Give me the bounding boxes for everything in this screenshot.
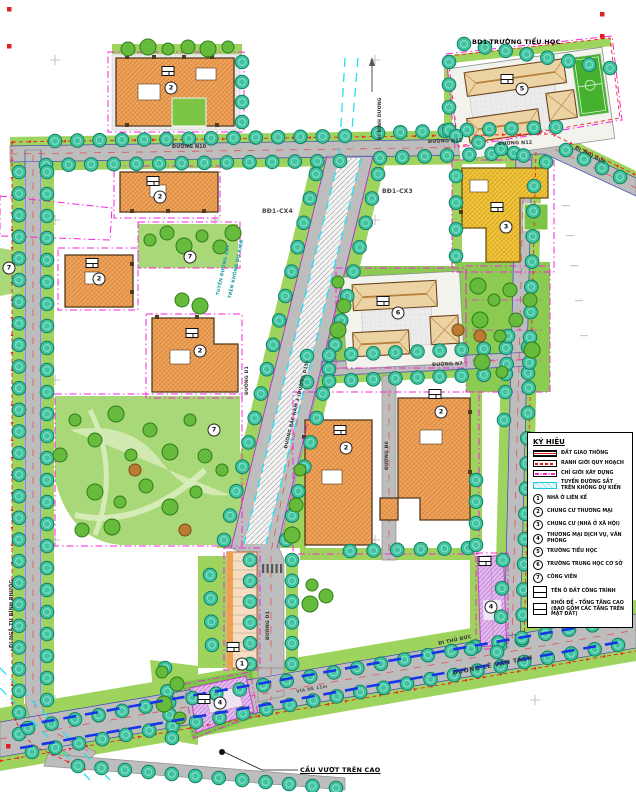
legend-item: 4 THƯƠNG MẠI DỊCH VỤ, VĂN PHÒNG [533, 533, 628, 544]
direction-binh-duong: ĐI BÌNH DƯƠNG [378, 97, 383, 140]
marker-secondary-school-6: 6 [392, 307, 405, 320]
overpass-label: CẦU VƯỢT TRÊN CAO [300, 766, 381, 774]
marker-commercial-4b: 4 [485, 601, 498, 614]
marker-primary-school-5: 5 [516, 83, 529, 96]
marker-apartment-2c: 2 [93, 273, 106, 286]
unit-label-box [491, 202, 504, 212]
road-label-d1-a: ĐƯỜNG D1 [245, 366, 250, 395]
railway-swatch-icon [533, 482, 557, 489]
road-label-d1-b: ĐƯỜNG D1 [266, 611, 271, 640]
unit-label-box [86, 258, 99, 268]
marker-park-7c: 7 [3, 262, 16, 275]
unit-label-box [162, 66, 175, 76]
legend-number-2: 2 [533, 507, 543, 517]
road-label-n6: ĐƯỜNG N6 [385, 441, 390, 470]
block-label-cx3: BĐ1-CX3 [382, 188, 413, 195]
unit-label-box [198, 694, 211, 704]
legend-item: CHỈ GIỚI XÂY DỰNG [533, 470, 628, 477]
legend-note: KHỐI ĐẾ - TỔNG TẦNG CAO (BAO GỒM CÁC TẦN… [533, 601, 628, 618]
direction-nga-tu-binh-phuoc: ĐI NGÃ TƯ BÌNH PHƯỚC [10, 580, 15, 648]
legend-item: TUYẾN ĐƯỜNG SẮT TRÊN KHÔNG DỰ KIẾN [533, 480, 628, 491]
unit-label-box [186, 328, 199, 338]
marker-social-housing-3: 3 [500, 221, 513, 234]
red-boundary-swatch-icon [533, 460, 557, 467]
marker-park-7a: 7 [184, 251, 197, 264]
marker-apartment-2b: 2 [154, 191, 167, 204]
legend-item: 7 CÔNG VIÊN [533, 573, 628, 583]
legend-title: KÝ HIỆU [533, 438, 628, 446]
floors-label-symbol [533, 603, 547, 615]
unit-label-box [334, 425, 347, 435]
legend-item: 6 TRƯỜNG TRUNG HỌC CƠ SỞ [533, 560, 628, 570]
direction-arrow [369, 57, 375, 92]
legend-number-6: 6 [533, 560, 543, 570]
marker-apartment-2e: 2 [340, 442, 353, 455]
legend-item: 1 NHÀ Ở LIÊN KẾ [533, 494, 628, 504]
marker-row-houses-1: 1 [236, 658, 249, 671]
legend-item: RANH GIỚI QUY HOẠCH [533, 460, 628, 467]
legend-note: TÊN Ô ĐẤT CÔNG TRÌNH [533, 586, 628, 598]
site-plan-drawing [0, 0, 636, 792]
marker-apartment-2f: 2 [435, 406, 448, 419]
unit-label-box [479, 556, 492, 566]
legend-item: ĐẤT GIAO THÔNG [533, 450, 628, 457]
parcel-label-symbol [533, 586, 547, 598]
unit-label-box [147, 176, 160, 186]
magenta-boundary-swatch-icon [533, 470, 557, 477]
legend-item: 5 TRƯỜNG TIỂU HỌC [533, 547, 628, 557]
marker-park-7b: 7 [208, 424, 221, 437]
unit-label-box [501, 74, 514, 84]
unit-label-box [227, 642, 240, 652]
legend-number-5: 5 [533, 547, 543, 557]
legend-number-1: 1 [533, 494, 543, 504]
marker-apartment-2d: 2 [194, 345, 207, 358]
secondary-school [342, 271, 465, 369]
legend-number-4: 4 [533, 534, 543, 544]
road-label-n10: ĐƯỜNG N10 [172, 145, 206, 150]
school-title: BD1-TRƯỜNG TIỂU HỌC [472, 38, 561, 46]
marker-commercial-4a: 4 [214, 697, 227, 710]
legend-number-3: 3 [533, 520, 543, 530]
master-plan-map: BD1-TRƯỜNG TIỂU HỌC BĐ1-CX4 BĐ1-CX3 ĐƯỜN… [0, 0, 636, 792]
unit-label-box [377, 296, 390, 306]
legend-item: 3 CHUNG CƯ (NHÀ Ở XÃ HỘI) [533, 520, 628, 530]
legend-item: 2 CHUNG CƯ THƯƠNG MẠI [533, 507, 628, 517]
legend-number-7: 7 [533, 573, 543, 583]
road-swatch-icon [533, 450, 557, 457]
legend: KÝ HIỆU ĐẤT GIAO THÔNG RANH GIỚI QUY HOẠ… [527, 432, 633, 628]
block-label-cx4: BĐ1-CX4 [262, 208, 293, 215]
road-label-n7: ĐƯỜNG N7 [432, 362, 463, 368]
marker-apartment-2a: 2 [165, 82, 178, 95]
unit-label-box [429, 389, 442, 399]
